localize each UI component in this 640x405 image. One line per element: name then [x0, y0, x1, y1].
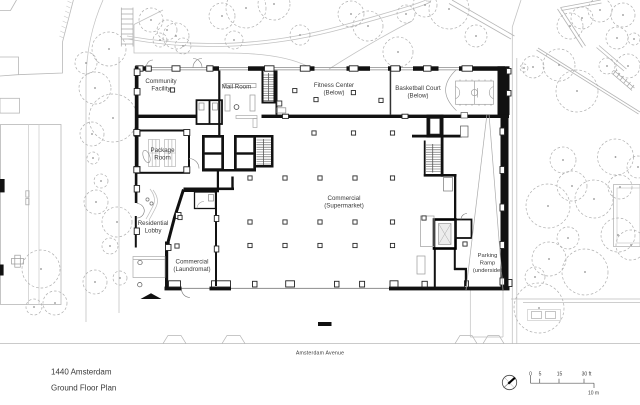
svg-text:Ramp: Ramp	[480, 261, 495, 267]
svg-text:Basketball Court: Basketball Court	[395, 85, 441, 92]
svg-text:1440 Amsterdam: 1440 Amsterdam	[51, 368, 112, 377]
svg-text:15: 15	[557, 372, 563, 378]
svg-text:Commercial: Commercial	[175, 259, 208, 266]
svg-text:Amsterdam Avenue: Amsterdam Avenue	[296, 351, 344, 357]
svg-text:Fitness Center: Fitness Center	[314, 82, 354, 89]
svg-text:Lobby: Lobby	[145, 228, 163, 235]
svg-text:30 ft: 30 ft	[582, 372, 592, 378]
svg-text:Mail Room: Mail Room	[222, 84, 252, 91]
svg-text:Package: Package	[150, 147, 175, 154]
svg-text:10 m: 10 m	[588, 391, 599, 397]
svg-text:Room: Room	[154, 155, 171, 162]
svg-text:0: 0	[529, 372, 532, 378]
svg-text:(Below): (Below)	[408, 93, 429, 100]
svg-text:5: 5	[539, 372, 542, 378]
svg-text:(Laundromat): (Laundromat)	[173, 266, 210, 273]
svg-text:(underside): (underside)	[473, 268, 502, 274]
svg-text:Residential: Residential	[138, 220, 169, 227]
svg-text:(Supermarket): (Supermarket)	[324, 203, 364, 210]
svg-text:Community: Community	[145, 78, 177, 85]
svg-text:Facility: Facility	[151, 86, 171, 93]
svg-text:Commercial: Commercial	[327, 195, 360, 202]
svg-text:Parking: Parking	[478, 253, 498, 259]
svg-text:(Below): (Below)	[324, 90, 345, 97]
svg-text:Ground Floor Plan: Ground Floor Plan	[51, 384, 116, 393]
